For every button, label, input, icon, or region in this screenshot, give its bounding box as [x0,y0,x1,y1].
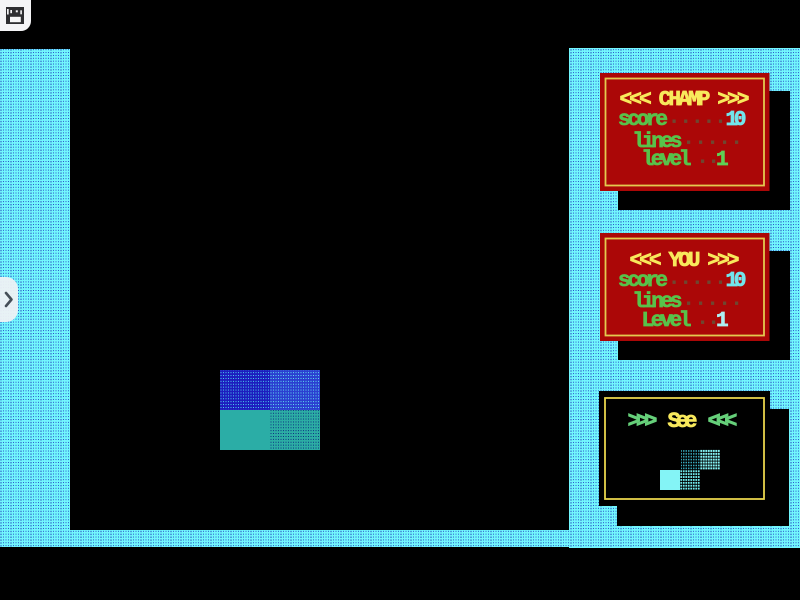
svg-text:10: 10 [726,270,747,293]
svg-text:level: level [642,149,692,172]
svg-text:score: score [618,109,668,132]
svg-text:See: See [668,409,698,434]
svg-text:1: 1 [716,310,729,333]
svg-text:<<<: <<< [708,409,738,434]
svg-text:>>>: >>> [628,409,658,434]
svg-text:Level: Level [642,310,692,333]
svg-text:score: score [618,270,668,293]
svg-text:10: 10 [726,109,747,132]
svg-text:1: 1 [716,149,729,172]
